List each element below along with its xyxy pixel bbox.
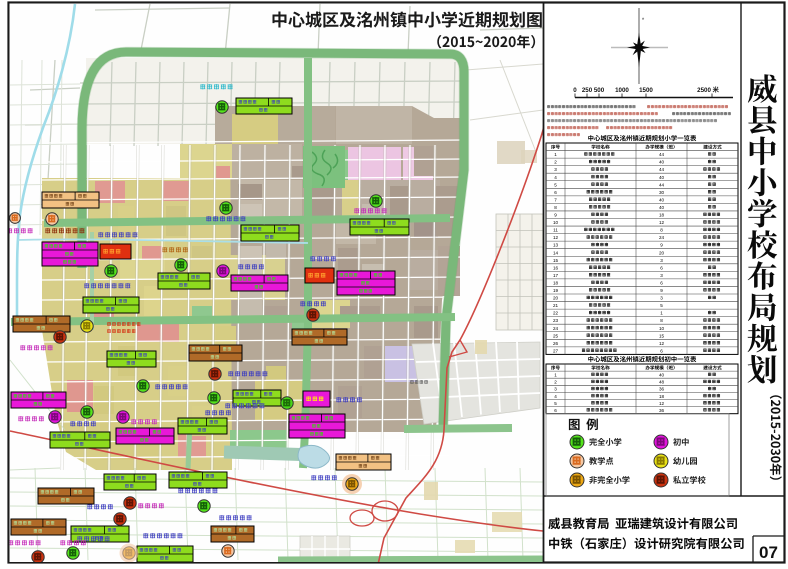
svg-text:12: 12 xyxy=(553,235,559,240)
svg-text:22: 22 xyxy=(553,311,559,316)
svg-text:6: 6 xyxy=(660,281,663,286)
svg-text:2500 米: 2500 米 xyxy=(697,86,719,94)
svg-text:4: 4 xyxy=(554,394,557,399)
svg-text:24: 24 xyxy=(553,326,559,331)
svg-text:15: 15 xyxy=(659,333,665,338)
svg-text:9: 9 xyxy=(660,288,663,293)
svg-text:40: 40 xyxy=(659,197,665,202)
svg-text:5: 5 xyxy=(660,303,663,308)
svg-text:6: 6 xyxy=(554,190,557,195)
svg-text:30: 30 xyxy=(659,190,665,195)
svg-text:44: 44 xyxy=(659,182,665,187)
svg-text:25: 25 xyxy=(553,333,559,338)
svg-text:40: 40 xyxy=(659,373,665,378)
svg-text:18: 18 xyxy=(553,281,559,286)
svg-text:1: 1 xyxy=(554,373,557,378)
svg-text:26: 26 xyxy=(553,341,559,346)
svg-text:21: 21 xyxy=(553,303,559,308)
svg-text:4: 4 xyxy=(554,175,557,180)
svg-text:6: 6 xyxy=(554,408,557,413)
svg-text:3: 3 xyxy=(660,258,663,263)
svg-text:12: 12 xyxy=(659,220,665,225)
svg-text:2: 2 xyxy=(554,380,557,385)
svg-text:40: 40 xyxy=(659,160,665,165)
svg-text:44: 44 xyxy=(659,152,665,157)
svg-text:6: 6 xyxy=(660,265,663,270)
svg-text:20: 20 xyxy=(659,250,665,255)
svg-text:23: 23 xyxy=(553,318,559,323)
svg-text:5: 5 xyxy=(554,182,557,187)
svg-text:1000: 1000 xyxy=(615,87,629,94)
svg-text:9: 9 xyxy=(554,213,557,218)
svg-text:250: 250 xyxy=(582,87,593,94)
svg-text:18: 18 xyxy=(659,394,665,399)
svg-text:12: 12 xyxy=(659,341,665,346)
svg-text:17: 17 xyxy=(553,273,559,278)
svg-text:1: 1 xyxy=(554,152,557,157)
svg-text:1: 1 xyxy=(660,311,663,316)
svg-text:8: 8 xyxy=(660,228,663,233)
svg-text:15: 15 xyxy=(553,258,559,263)
svg-text:14: 14 xyxy=(553,250,559,255)
svg-text:0: 0 xyxy=(573,87,577,94)
svg-text:9: 9 xyxy=(660,243,663,248)
svg-text:1500: 1500 xyxy=(639,87,653,94)
svg-text:36: 36 xyxy=(659,408,665,413)
svg-text:2: 2 xyxy=(554,160,557,165)
svg-text:27: 27 xyxy=(553,348,559,353)
svg-text:7: 7 xyxy=(554,197,557,202)
svg-text:19: 19 xyxy=(553,288,559,293)
svg-text:13: 13 xyxy=(553,243,559,248)
svg-text:07: 07 xyxy=(759,543,778,562)
svg-text:36: 36 xyxy=(659,387,665,392)
svg-text:8: 8 xyxy=(660,318,663,323)
svg-text:40: 40 xyxy=(659,175,665,180)
svg-text:44: 44 xyxy=(659,167,665,172)
svg-text:20: 20 xyxy=(553,296,559,301)
svg-text:500: 500 xyxy=(594,87,605,94)
svg-text:3: 3 xyxy=(660,296,663,301)
svg-text:18: 18 xyxy=(659,213,665,218)
svg-text:48: 48 xyxy=(659,380,665,385)
svg-text:24: 24 xyxy=(659,235,665,240)
svg-text:11: 11 xyxy=(553,228,558,233)
svg-text:12: 12 xyxy=(659,401,665,406)
svg-text:40: 40 xyxy=(659,205,665,210)
svg-text:8: 8 xyxy=(554,205,557,210)
svg-text:6: 6 xyxy=(660,348,663,353)
svg-text:3: 3 xyxy=(660,273,663,278)
svg-text:10: 10 xyxy=(659,326,665,331)
svg-text:10: 10 xyxy=(553,220,559,225)
svg-text:3: 3 xyxy=(554,387,557,392)
svg-text:5: 5 xyxy=(554,401,557,406)
svg-text:3: 3 xyxy=(554,167,557,172)
svg-text:16: 16 xyxy=(553,265,559,270)
